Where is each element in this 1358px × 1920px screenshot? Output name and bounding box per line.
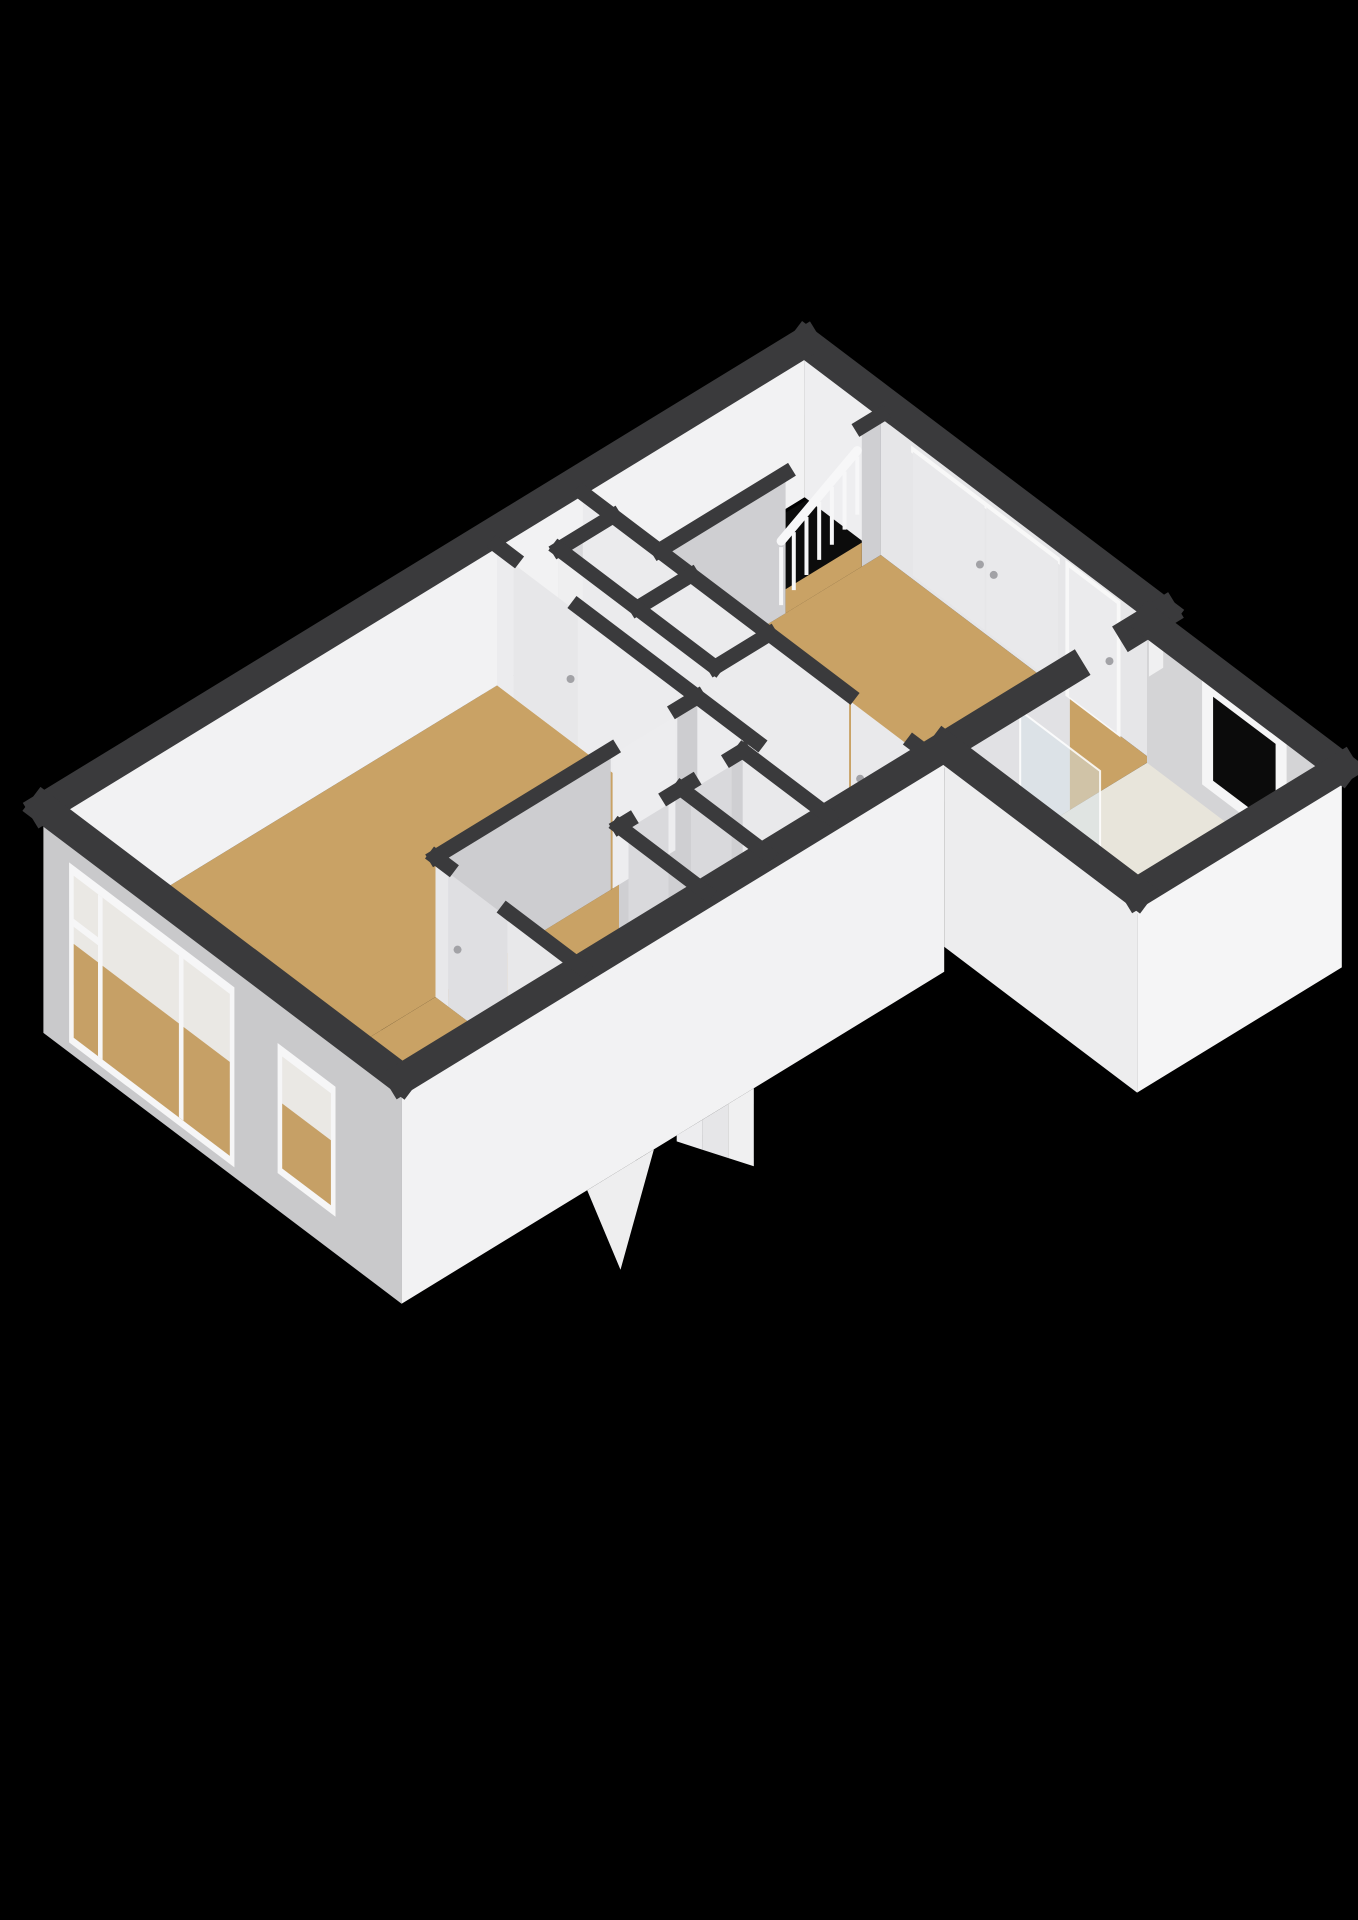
living-door-handle [567,675,575,683]
railing-wall-upper [862,415,881,567]
bedroom3-wall-top-l [436,857,449,867]
wc-front-top-3 [619,821,629,827]
closet-handle-1 [976,561,984,569]
bedroom3-ne-wall-left [436,857,449,1007]
landing-sw-wall-left [497,545,513,698]
closet-handle-2 [990,571,998,579]
wc-front-top-1 [731,751,742,758]
divider-wall-top-u [677,697,697,709]
bedroom3-door-handle [454,946,462,954]
floorplan-scene [0,0,1358,1920]
landing-sw-wall-top-l [497,545,513,558]
bedroom2-sw-wall-top-r [913,743,930,756]
floorplan-3d-view [0,0,1358,1920]
living-room-window-mullion [179,955,184,1121]
living-room-window-mullion [98,894,103,1059]
railing-wall-top-u [862,415,881,427]
ne-door-handle [1105,657,1113,665]
